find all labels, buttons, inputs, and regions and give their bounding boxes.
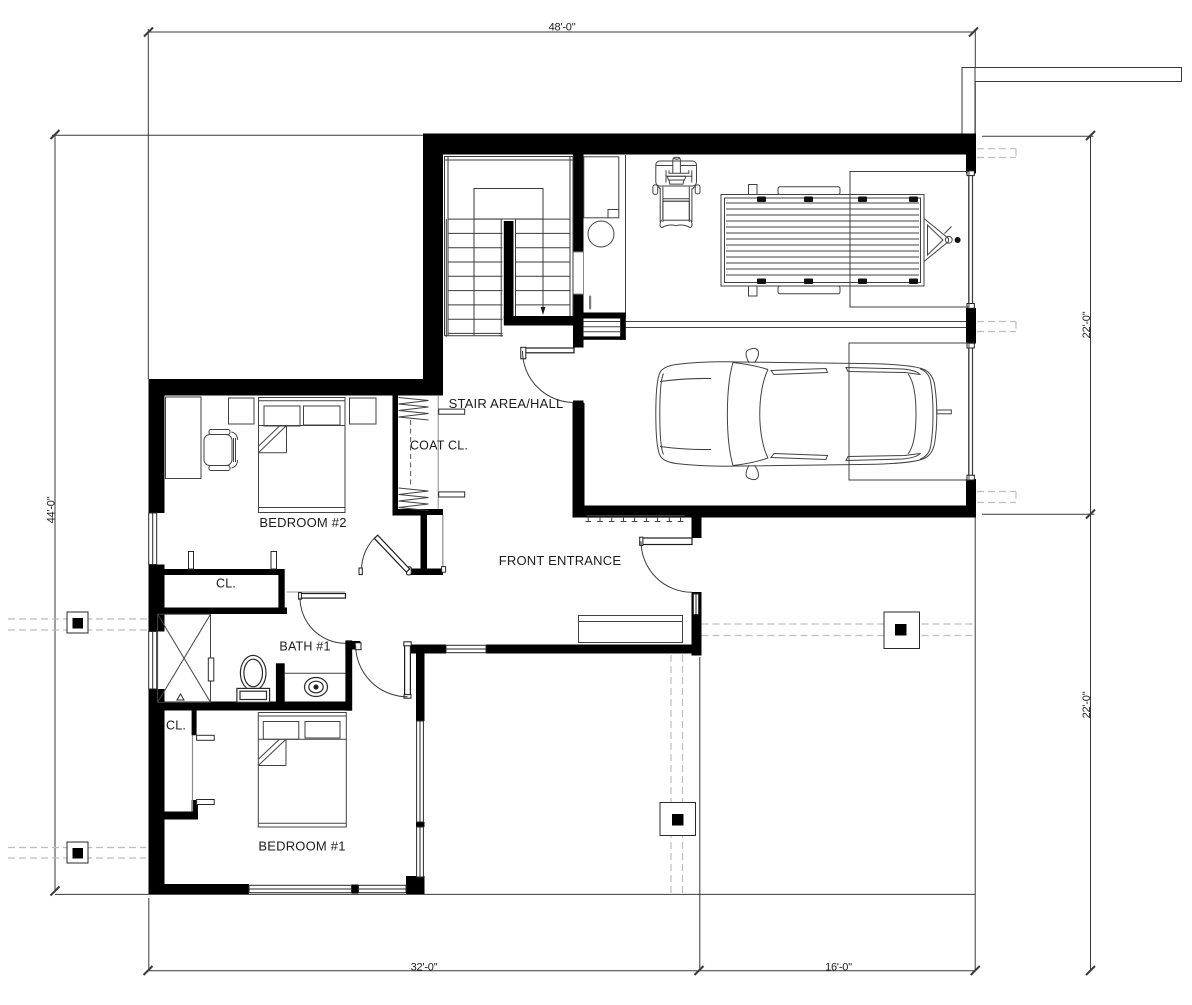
svg-text:STAIR AREA/HALL: STAIR AREA/HALL (449, 396, 564, 411)
svg-text:BEDROOM #1: BEDROOM #1 (258, 839, 345, 854)
svg-text:CL.: CL. (166, 719, 186, 733)
svg-text:22'-0": 22'-0" (1081, 311, 1093, 338)
svg-text:CL.: CL. (216, 577, 236, 591)
svg-text:32'-0": 32'-0" (411, 962, 438, 974)
svg-text:BATH #1: BATH #1 (279, 640, 330, 654)
svg-text:COAT CL.: COAT CL. (410, 439, 468, 453)
svg-text:FRONT ENTRANCE: FRONT ENTRANCE (499, 553, 622, 568)
svg-text:16'-0": 16'-0" (825, 962, 852, 974)
svg-text:22'-0": 22'-0" (1081, 691, 1093, 718)
svg-text:44'-0": 44'-0" (46, 496, 58, 523)
svg-text:48'-0": 48'-0" (549, 22, 576, 34)
svg-text:BEDROOM #2: BEDROOM #2 (259, 515, 346, 530)
